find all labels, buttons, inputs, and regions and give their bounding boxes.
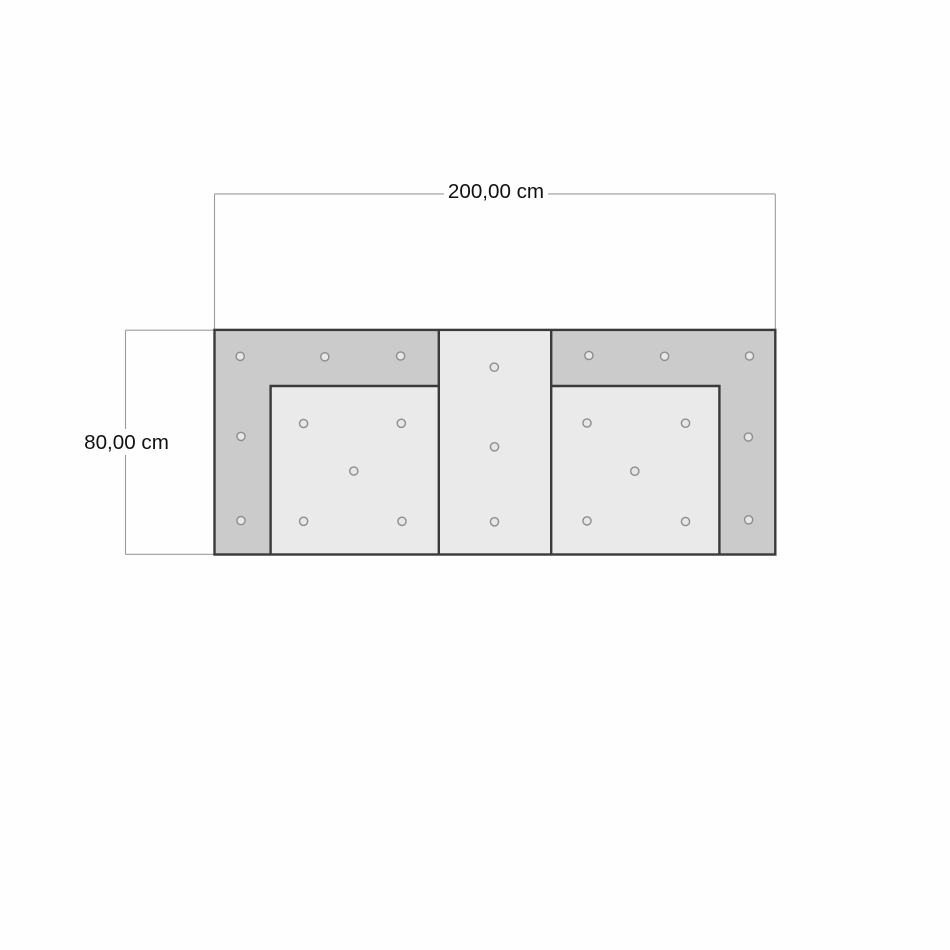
svg-text:80,00 cm: 80,00 cm: [84, 431, 169, 454]
svg-text:200,00 cm: 200,00 cm: [448, 180, 544, 203]
